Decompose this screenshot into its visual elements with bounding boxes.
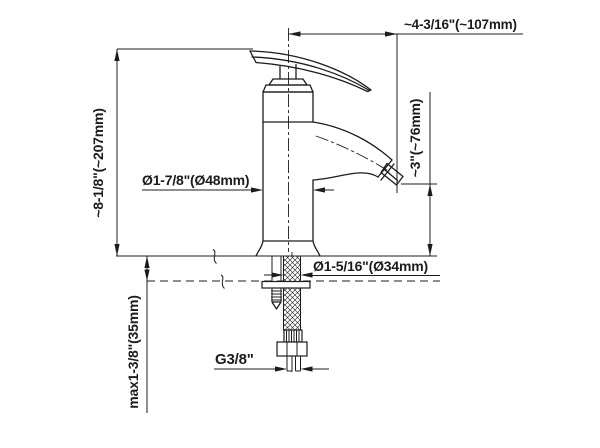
height-arrow-bottom [114,244,119,256]
height-dim-label: ~8-1/8"(~207mm) [90,108,106,217]
under-counter-hardware [262,256,310,371]
cap-lower [263,85,313,92]
spout-bottom-edge [313,173,378,180]
cap-upper [269,79,307,85]
thread-label: G3/8" [215,351,254,368]
thread-arrow-right [301,366,313,371]
dimension-spout-outlet-height: ~3"(~76mm) [401,92,437,256]
deck-arrow-top [144,256,149,268]
dimension-spout-reach: ~4-3/16"(~107mm) [289,17,524,193]
base-flare-left [256,241,263,256]
height-arrow-top [114,49,119,61]
braided-hose [284,256,301,330]
reach-arrow-right [385,31,397,36]
hole-dia-arrow-right [301,272,313,277]
outlet-dim-label: ~3"(~76mm) [407,99,423,178]
base-flare-right [313,241,320,256]
outlet-arrow-bottom [427,244,432,256]
counter-break-mark-bottom [221,275,225,289]
dimension-supply-thread: G3/8" [214,351,329,372]
body-dia-arrow-right [313,187,325,192]
outlet-arrow-top [427,184,432,196]
hole-dia-label: Ø1-5/16"(Ø34mm) [313,258,428,274]
dimension-body-diameter: Ø1-7/8"(Ø48mm) [142,172,334,193]
mounting-washer [262,282,310,289]
mounting-stud [272,256,281,302]
body-dia-label: Ø1-7/8"(Ø48mm) [142,172,249,188]
handle-stem-and-cap [263,65,313,93]
faucet-body [256,92,320,256]
spout-centerline [316,136,390,172]
stud-tip [272,302,281,309]
faucet-dimension-diagram: ~4-3/16"(~107mm) ~8-1/8"(~207mm) ~3"(~76… [0,0,600,448]
dimension-overall-height: ~8-1/8"(~207mm) [90,49,253,256]
technical-drawing-canvas: ~4-3/16"(~107mm) ~8-1/8"(~207mm) ~3"(~76… [0,0,600,448]
dimension-deck-thickness: max1-3/8"(35mm) [125,256,150,413]
hole-dia-arrow-left [272,272,284,277]
body-dia-arrow-left [251,187,263,192]
reach-dim-label: ~4-3/16"(~107mm) [404,17,517,32]
stud-threads [271,291,282,300]
deck-arrow-bottom [144,270,149,282]
hex-nut [277,342,307,356]
reach-arrow-left [289,31,301,36]
deck-dim-label: max1-3/8"(35mm) [125,295,141,408]
threaded-tails [287,356,301,371]
aerator-tip [381,164,403,186]
spout-top-edge [313,122,392,160]
thread-arrow-left [275,366,287,371]
